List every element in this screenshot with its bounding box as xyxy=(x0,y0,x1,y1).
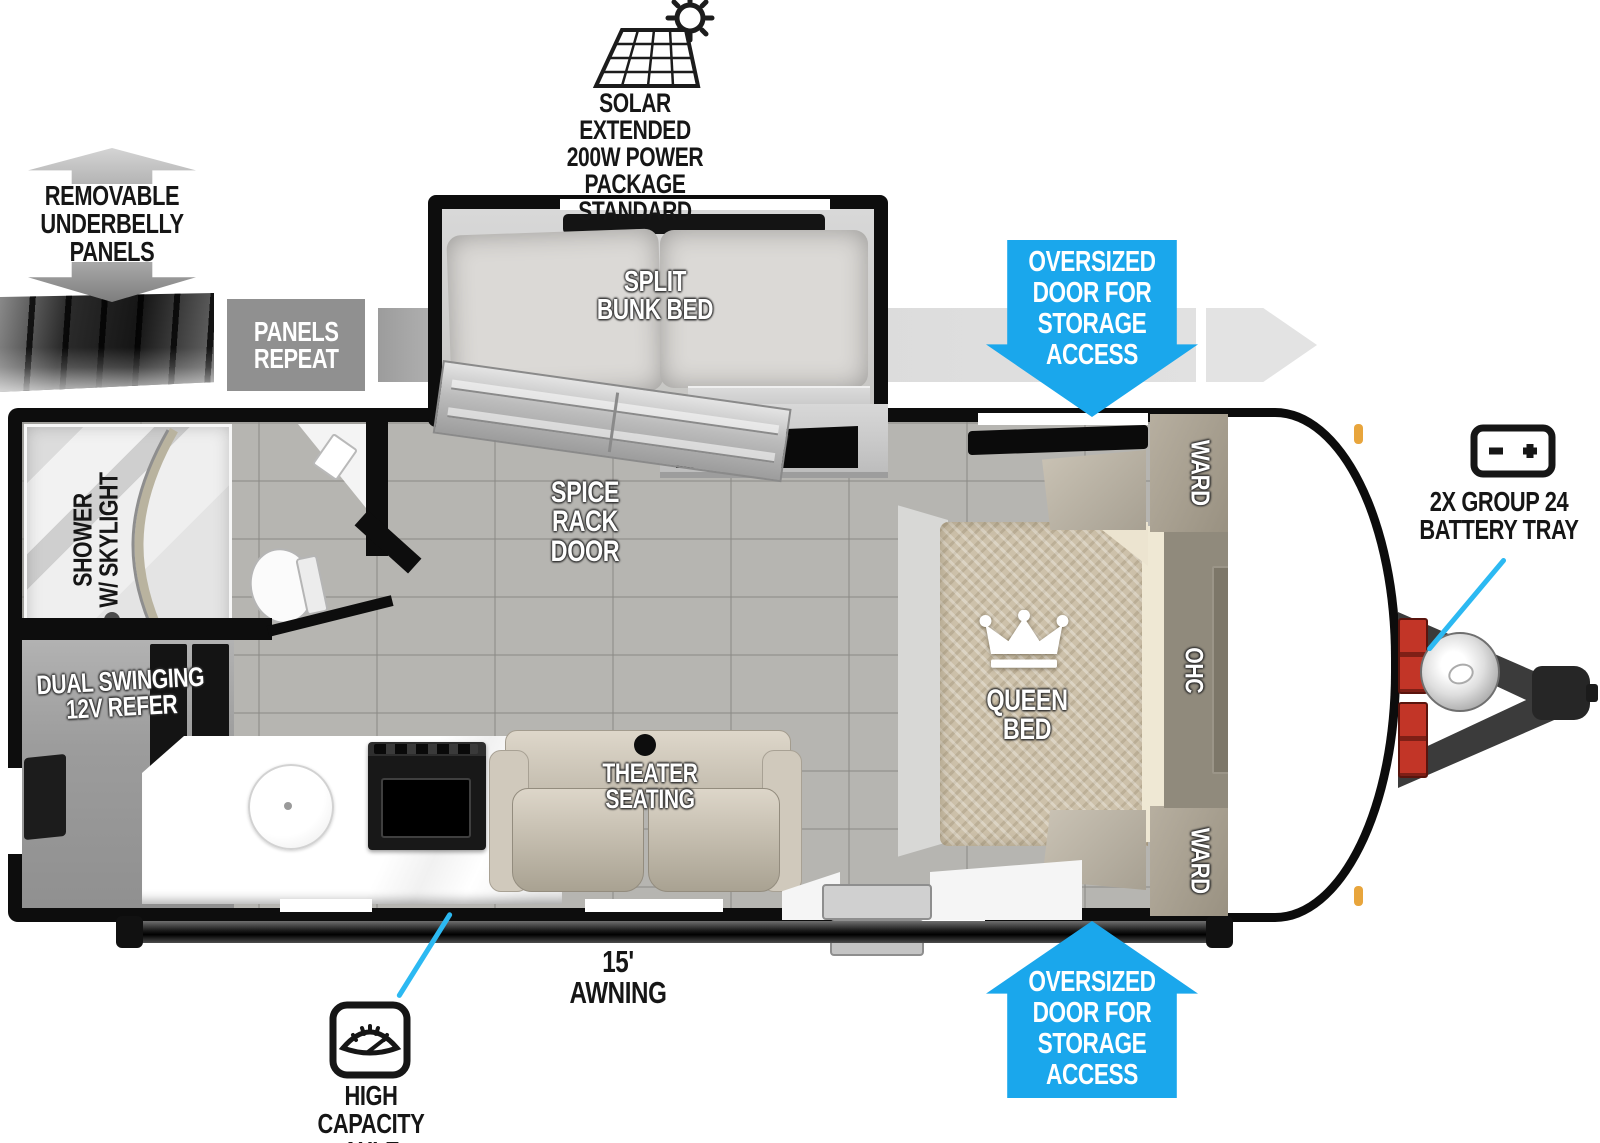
solar-label: SOLAR EXTENDED 200W POWER PACKAGE STANDA… xyxy=(530,90,740,225)
nightstand-top xyxy=(1042,450,1146,530)
spice-rack-label: SPICE RACKDOOR xyxy=(500,478,670,566)
axle-label: HIGH CAPACITY AXLE xyxy=(290,1082,452,1143)
rear-cabinet-panel xyxy=(24,754,66,840)
hitch-coupler xyxy=(1532,666,1590,720)
hitch-coupler-knob xyxy=(1586,684,1598,702)
underbelly-panels-photo xyxy=(0,293,214,392)
awning-label: 15' AWNING xyxy=(538,946,698,1008)
underbelly-band-arrowhead-icon xyxy=(1205,308,1317,382)
floorplan-diagram: PANELS REPEAT SPLITBUNK BED SHOWER W/ SK… xyxy=(0,0,1600,1143)
theater-label: THEATERSEATING xyxy=(575,760,725,813)
solar-panel-icon xyxy=(586,0,718,92)
entry-step xyxy=(822,884,932,920)
top-wall-window xyxy=(978,413,1148,425)
awning-cap-left xyxy=(116,916,143,948)
bottom-window-2 xyxy=(585,899,723,912)
panels-repeat-label: PANELS REPEAT xyxy=(227,299,365,391)
bunk-label: SPLITBUNK BED xyxy=(570,268,740,325)
bottom-window-1 xyxy=(280,899,372,912)
battery-tray-rear xyxy=(1398,702,1428,778)
shower-label: SHOWER W/ SKYLIGHT xyxy=(20,430,170,650)
battery-icon xyxy=(1468,420,1558,482)
marker-light-top-icon xyxy=(1354,424,1363,444)
oven-window xyxy=(381,778,471,838)
marker-light-bottom-icon xyxy=(1354,886,1363,906)
crown-icon xyxy=(978,610,1070,676)
storage-door-arrow-bottom: OVERSIZED DOOR FOR STORAGE ACCESS xyxy=(986,921,1198,1098)
rear-window xyxy=(6,768,22,854)
bathroom-wall-bottom xyxy=(22,618,272,640)
queen-bed-label: QUEEN BED xyxy=(942,686,1112,745)
up-arrow-icon xyxy=(28,148,196,184)
scale-icon xyxy=(328,1000,412,1080)
faucet-icon xyxy=(284,802,292,810)
awning-cap-right xyxy=(1206,916,1233,948)
stove xyxy=(368,742,486,850)
cupholder-icon xyxy=(634,734,656,756)
storage-door-arrow-top: OVERSIZED DOOR FOR STORAGE ACCESS xyxy=(986,240,1198,417)
stove-knobs xyxy=(374,744,478,754)
band-gap xyxy=(1196,300,1206,388)
underbelly-label: REMOVABLE UNDERBELLY PANELS xyxy=(12,182,212,266)
front-cap xyxy=(1228,408,1400,922)
battery-label: 2X GROUP 24 BATTERY TRAY xyxy=(1396,488,1600,544)
